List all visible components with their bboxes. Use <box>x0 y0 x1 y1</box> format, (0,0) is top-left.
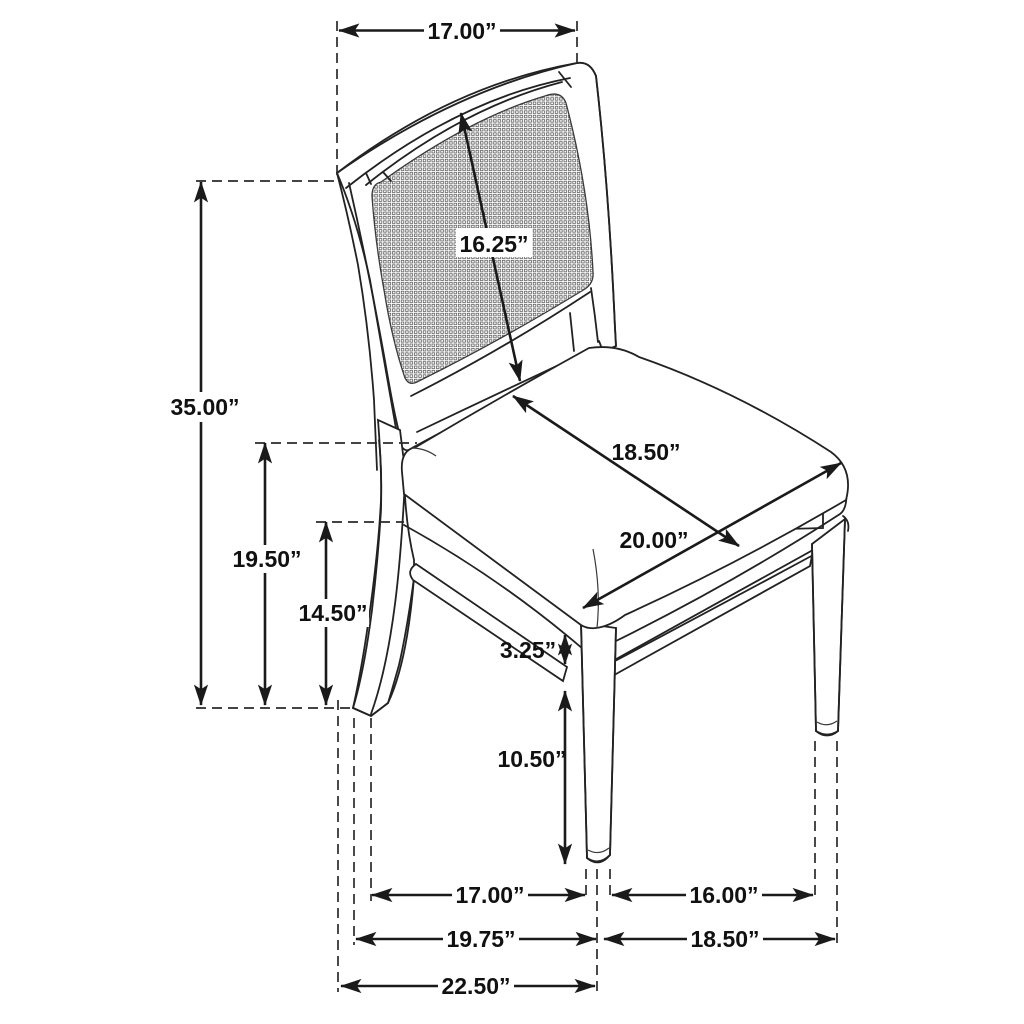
svg-text:18.50”: 18.50” <box>611 439 680 465</box>
svg-text:17.00”: 17.00” <box>455 882 524 908</box>
svg-text:18.50”: 18.50” <box>690 926 759 952</box>
svg-text:3.25”: 3.25” <box>500 637 556 663</box>
svg-text:16.00”: 16.00” <box>689 882 758 908</box>
svg-text:10.50”: 10.50” <box>497 746 566 772</box>
svg-text:14.50”: 14.50” <box>298 600 367 626</box>
svg-text:22.50”: 22.50” <box>441 973 510 999</box>
svg-text:19.50”: 19.50” <box>232 546 301 572</box>
svg-text:20.00”: 20.00” <box>619 527 688 553</box>
svg-text:35.00”: 35.00” <box>170 394 239 420</box>
svg-text:19.75”: 19.75” <box>446 926 515 952</box>
svg-text:17.00”: 17.00” <box>427 18 496 44</box>
svg-text:16.25”: 16.25” <box>459 231 528 257</box>
